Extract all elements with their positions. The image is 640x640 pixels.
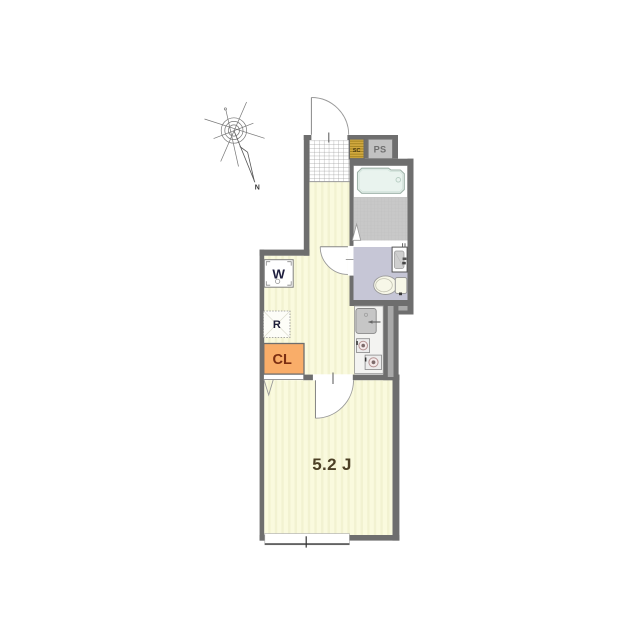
svg-text:N: N xyxy=(255,184,260,191)
svg-text:CL: CL xyxy=(273,352,292,368)
svg-text:SC: SC xyxy=(353,148,361,154)
svg-text:5.2 J: 5.2 J xyxy=(312,455,352,474)
svg-text:W: W xyxy=(272,266,285,281)
svg-text:R: R xyxy=(273,319,281,331)
svg-text:PS: PS xyxy=(374,145,387,155)
